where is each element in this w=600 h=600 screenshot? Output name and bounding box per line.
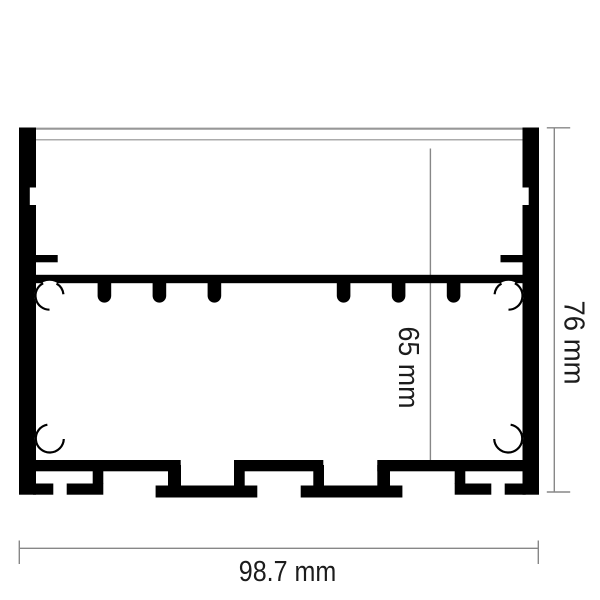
svg-text:98.7 mm: 98.7 mm — [239, 556, 336, 588]
svg-text:65 mm: 65 mm — [392, 327, 424, 409]
svg-text:76 mm: 76 mm — [558, 301, 590, 385]
